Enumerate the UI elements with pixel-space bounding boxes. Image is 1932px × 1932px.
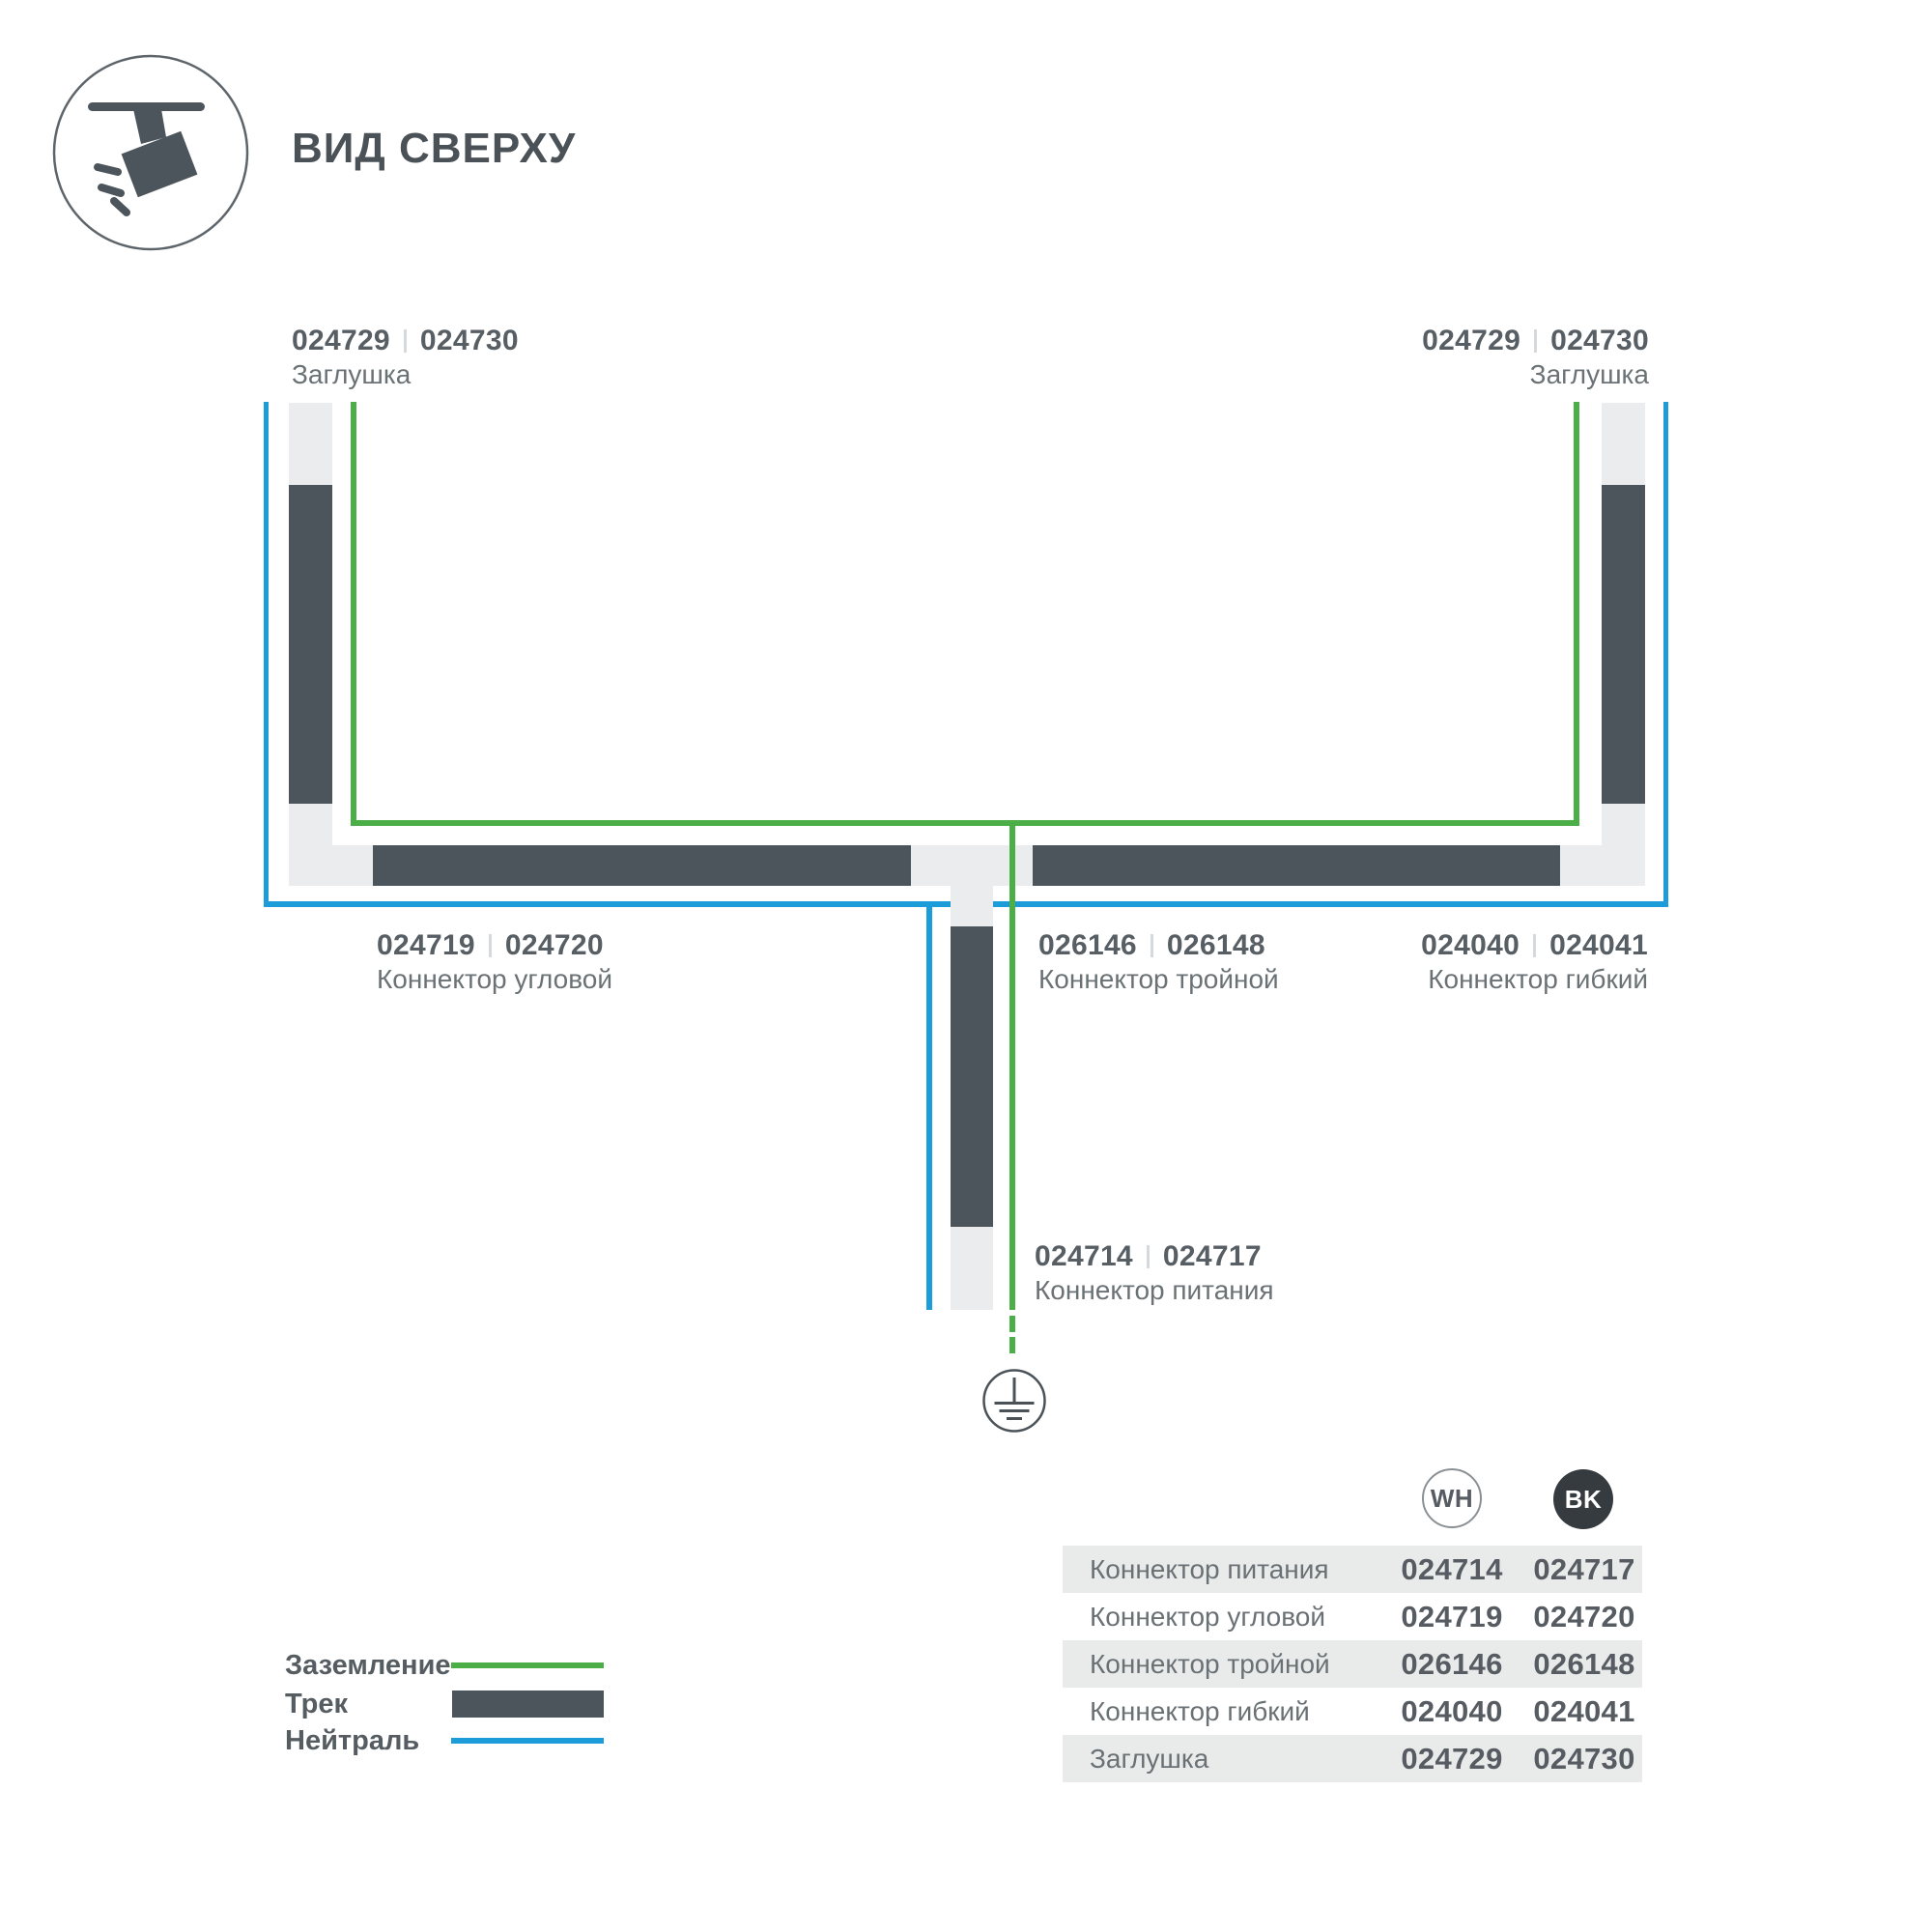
column-badge-white: WH [1422,1468,1482,1528]
part-codes: 024729 024730 [1422,328,1649,354]
parts-table: Коннектор питания 024714 024717 Коннекто… [1063,1546,1642,1782]
ground-wire-swatch [451,1662,604,1668]
code-bk: 024041 [1549,933,1648,958]
row-wh-code: 024719 [1378,1600,1526,1634]
code-wh: 024729 [292,328,390,354]
code-bk: 026148 [1167,933,1265,958]
label-power-connector: 024714 024717 Коннектор питания [1035,1244,1274,1303]
part-name: Заглушка [1422,362,1649,387]
column-badge-black: BK [1553,1469,1613,1529]
part-name: Коннектор тройной [1038,967,1279,992]
table-row: Коннектор гибкий 024040 024041 [1063,1688,1642,1735]
page-title: ВИД СВЕРХУ [292,124,576,174]
legend-item-track: Трек [285,1690,604,1718]
part-codes: 026146 026148 [1038,933,1279,958]
corner-connector-right-horizontal [1560,845,1602,886]
row-bk-code: 026148 [1526,1647,1642,1682]
power-connector [951,1227,993,1310]
row-bk-code: 024730 [1526,1742,1642,1776]
part-codes: 024040 024041 [1421,933,1648,958]
code-wh: 024719 [377,933,475,958]
legend-label: Заземление [285,1650,451,1682]
legend-item-neutral: Нейтраль [285,1727,604,1754]
part-codes: 024714 024717 [1035,1244,1274,1269]
part-name: Заглушка [292,362,519,387]
code-wh: 026146 [1038,933,1137,958]
label-endcap-right: 024729 024730 Заглушка [1422,328,1649,387]
endcap-left [289,403,332,485]
ground-wire-drop [1009,826,1015,1310]
legend-label: Нейтраль [285,1725,419,1757]
part-name: Коннектор угловой [377,967,612,992]
code-wh: 024040 [1421,933,1520,958]
row-bk-code: 024041 [1526,1694,1642,1729]
code-bk: 024730 [420,328,519,354]
part-name: Коннектор питания [1035,1278,1274,1303]
track-center-vertical [951,926,993,1227]
part-name: Коннектор гибкий [1421,967,1648,992]
page: ВИД СВЕРХУ 024729 024730 Заглу [0,0,1932,1932]
row-wh-code: 026146 [1378,1647,1526,1682]
legend-item-ground: Заземление [285,1652,604,1679]
label-flexible-connector: 024040 024041 Коннектор гибкий [1421,933,1648,992]
code-separator [489,934,492,957]
corner-connector-left-horizontal [332,845,373,886]
row-name: Заглушка [1063,1744,1378,1775]
spotlight-icon [52,54,249,251]
code-separator [1534,329,1537,353]
code-separator [404,329,407,353]
table-row: Заглушка 024729 024730 [1063,1735,1642,1782]
row-wh-code: 024729 [1378,1742,1526,1776]
code-separator [1533,934,1536,957]
ground-wire-dashed [1009,1316,1015,1354]
row-name: Коннектор тройной [1063,1649,1378,1680]
part-codes: 024729 024730 [292,328,519,354]
track-horizontal-left [373,845,911,886]
triple-connector-stem [951,886,993,926]
code-bk: 024730 [1550,328,1649,354]
track-swatch [452,1690,604,1718]
code-separator [1151,934,1153,957]
ground-wire-loop [351,402,1579,826]
corner-connector-left-vertical [289,804,332,886]
label-endcap-left: 024729 024730 Заглушка [292,328,519,387]
track-horizontal-right [1033,845,1560,886]
neutral-wire-swatch [451,1738,604,1744]
code-wh: 024714 [1035,1244,1133,1269]
track-left-vertical [289,485,332,804]
track-right-vertical [1602,485,1645,804]
table-row: Коннектор питания 024714 024717 [1063,1546,1642,1593]
row-name: Коннектор угловой [1063,1602,1378,1633]
corner-connector-right-vertical [1602,804,1645,886]
row-name: Коннектор гибкий [1063,1696,1378,1727]
code-bk: 024717 [1163,1244,1262,1269]
row-name: Коннектор питания [1063,1554,1378,1585]
row-wh-code: 024040 [1378,1694,1526,1729]
legend-label: Трек [285,1689,348,1720]
code-wh: 024729 [1422,328,1520,354]
part-codes: 024719 024720 [377,933,612,958]
label-triple-connector: 026146 026148 Коннектор тройной [1038,933,1279,992]
code-bk: 024720 [505,933,604,958]
row-wh-code: 024714 [1378,1552,1526,1587]
row-bk-code: 024717 [1526,1552,1642,1587]
label-corner-connector: 024719 024720 Коннектор угловой [377,933,612,992]
table-row: Коннектор тройной 026146 026148 [1063,1640,1642,1688]
ground-symbol-icon [980,1366,1049,1435]
table-row: Коннектор угловой 024719 024720 [1063,1593,1642,1640]
endcap-right [1602,403,1645,485]
neutral-wire-drop [926,907,932,1310]
row-bk-code: 024720 [1526,1600,1642,1634]
code-separator [1147,1245,1150,1268]
